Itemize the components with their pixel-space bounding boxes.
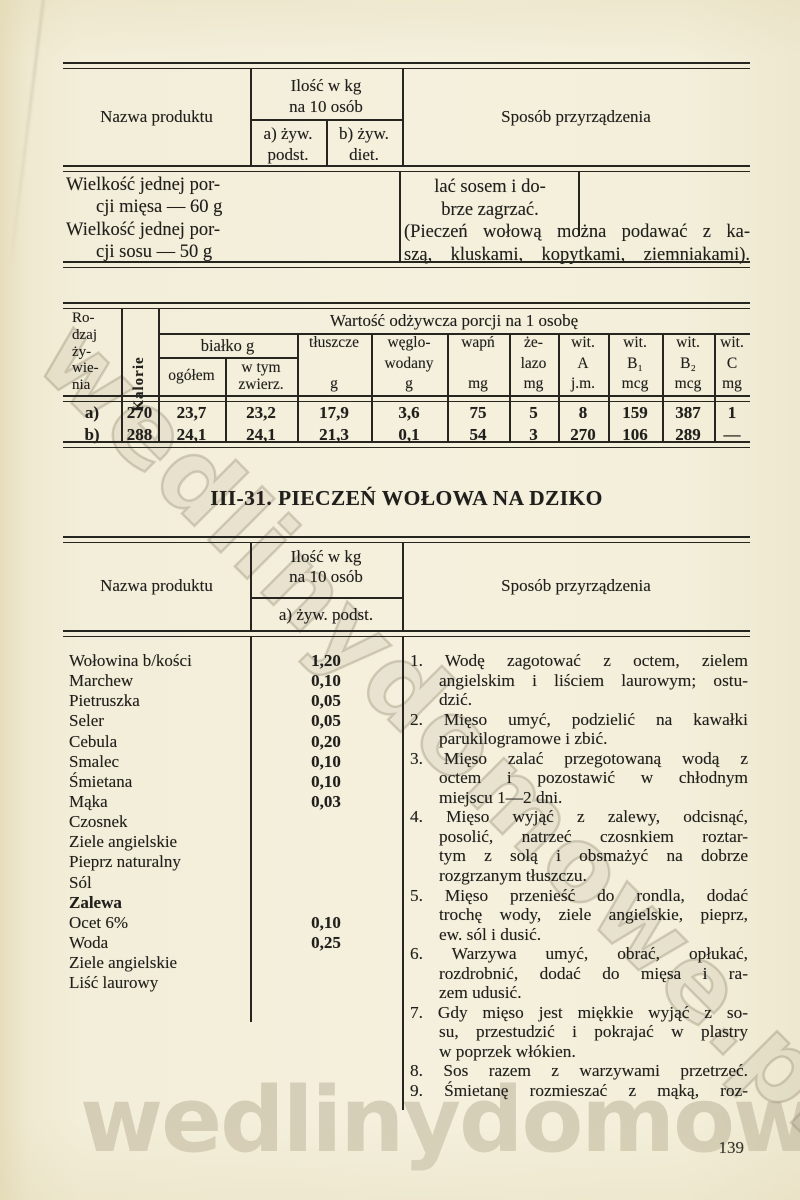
column-header-product: Nazwa produktu bbox=[63, 69, 250, 165]
step-line: 3. Mięso zalać przegotowaną wodą z bbox=[402, 749, 750, 769]
step-line: 8. Sos razem z warzywami przetrzeć. bbox=[402, 1061, 750, 1081]
ingredient-row: Sól bbox=[63, 873, 402, 893]
ingredient-row: Ziele angielskie bbox=[63, 832, 402, 852]
column-header-qty-a: a) żyw. podst. bbox=[250, 602, 402, 628]
weglowodany-header: węglo- wodany g bbox=[371, 335, 447, 392]
wit-c-header: wit. C mg bbox=[714, 335, 750, 392]
step-line: rozdrobnić, dodać do mięsa i ra- bbox=[402, 964, 750, 984]
column-header-product: Nazwa produktu bbox=[63, 542, 250, 630]
step-line: 4. Mięso wyjąć z zalewy, odcisnąć, bbox=[402, 807, 750, 827]
step-line: tym z solą i obsmażyć na dobrze bbox=[402, 846, 750, 866]
column-header-qty: Ilość w kg na 10 osób bbox=[250, 546, 402, 588]
scanned-page: wedlinydomowe.pl wedlinydomowe.pl Nazwa … bbox=[0, 0, 800, 1200]
table-divider bbox=[399, 172, 401, 262]
portion-line: cji sosu — 50 g bbox=[66, 241, 396, 263]
ingredient-row: Czosnek bbox=[63, 812, 402, 832]
nutrition-span-title: Wartość odżywcza porcji na 1 osobę bbox=[158, 309, 750, 333]
step-line: dzić. bbox=[402, 690, 750, 710]
qty-b-line: b) żyw. bbox=[339, 123, 389, 144]
ogolem-header: ogółem bbox=[158, 359, 225, 393]
ingredient-row: Wołowina b/kości1,20 bbox=[63, 651, 402, 671]
method-note-line: (Pieczeń wołową można podawać z ka- bbox=[404, 221, 750, 244]
ingredient-row: Ziele angielskie bbox=[63, 953, 402, 973]
wapn-header: wapń mg bbox=[447, 335, 509, 392]
tluszcze-header: tłuszcze g bbox=[297, 335, 371, 392]
qty-a-line: a) żyw. bbox=[264, 123, 313, 144]
column-header-qty-b: b) żyw. diet. bbox=[326, 122, 402, 165]
table-rule bbox=[63, 630, 750, 637]
qty-a-line: podst. bbox=[267, 144, 308, 165]
step-line: 7. Gdy mięso jest miękkie wyjąć z so- bbox=[402, 1003, 750, 1023]
qty-header-line: na 10 osób bbox=[289, 96, 363, 117]
ingredient-row: Śmietana0,10 bbox=[63, 772, 402, 792]
zelazo-header: że- lazo mg bbox=[509, 335, 558, 392]
table-bottom-rule bbox=[63, 441, 750, 448]
table-rule bbox=[250, 597, 402, 599]
portion-line: Wielkość jednej por- bbox=[66, 174, 396, 196]
step-line: rozgrzanym tłuszczu. bbox=[402, 866, 750, 886]
wit-a-header: wit. A j.m. bbox=[558, 335, 608, 392]
wit-b1-header: wit. B₁ mcg bbox=[608, 335, 662, 392]
step-line: 6. Warzywa umyć, obrać, opłukać, bbox=[402, 944, 750, 964]
step-line: 9. Śmietanę rozmieszać z mąką, roz- bbox=[402, 1081, 750, 1101]
step-line: 1. Wodę zagotować z octem, zielem bbox=[402, 651, 750, 671]
step-line: miejscu 1—2 dni. bbox=[402, 788, 750, 808]
ingredient-row: Cebula0,20 bbox=[63, 732, 402, 752]
ingredient-row: Ocet 6%0,10 bbox=[63, 913, 402, 933]
table-rule bbox=[63, 395, 750, 402]
ingredient-row-zalewa: Zalewa bbox=[63, 893, 402, 913]
step-line: posolić, natrzeć czosnkiem roztar- bbox=[402, 827, 750, 847]
column-header-method: Sposób przyrządzenia bbox=[402, 69, 750, 165]
table-top-rule bbox=[63, 302, 750, 309]
table-top-rule bbox=[63, 62, 750, 69]
column-header-qty: Ilość w kg na 10 osób bbox=[250, 74, 402, 118]
step-line: parukilogramowe i zbić. bbox=[402, 729, 750, 749]
ingredient-row: Mąka0,03 bbox=[63, 792, 402, 812]
step-line: zem udusić. bbox=[402, 983, 750, 1003]
preparation-steps: 1. Wodę zagotować z octem, zielem angiel… bbox=[402, 651, 750, 1101]
step-line: 2. Mięso umyć, podzielić na kawałki bbox=[402, 710, 750, 730]
ingredient-row: Liść laurowy bbox=[63, 973, 402, 993]
portion-line: cji mięsa — 60 g bbox=[66, 196, 396, 218]
column-header-qty-a: a) żyw. podst. bbox=[250, 122, 326, 165]
step-line: su, przestudzić i pokrajać w plastry bbox=[402, 1022, 750, 1042]
wit-b2-header: wit. B₂ mcg bbox=[662, 335, 714, 392]
row-label: a) bbox=[63, 402, 121, 424]
ingredient-row: Seler0,05 bbox=[63, 711, 402, 731]
step-line: angielskim i liściem laurowym; ostu- bbox=[402, 671, 750, 691]
ingredient-row: Smalec0,10 bbox=[63, 752, 402, 772]
method-line: brze zagrzać. bbox=[402, 199, 578, 222]
page-number: 139 bbox=[688, 1138, 744, 1158]
portion-note: Wielkość jednej por- cji mięsa — 60 g Wi… bbox=[66, 174, 396, 263]
step-line: w poprzek włókien. bbox=[402, 1042, 750, 1062]
qty-b-line: diet. bbox=[349, 144, 379, 165]
ingredient-row: Pietruszka0,05 bbox=[63, 691, 402, 711]
ingredient-row: Pieprz naturalny bbox=[63, 852, 402, 872]
ingredient-row: Woda0,25 bbox=[63, 933, 402, 953]
column-header-method: Sposób przyrządzenia bbox=[402, 542, 750, 630]
ingredient-list: Wołowina b/kości1,20 Marchew0,10 Pietrus… bbox=[63, 651, 402, 993]
rodzaj-header: Ro- dzaj ży- wie- nia bbox=[63, 310, 121, 394]
step-line: trochę wody, ziele angielskie, pieprz, bbox=[402, 905, 750, 925]
method-ending: lać sosem i do- brze zagrzać. bbox=[402, 176, 578, 221]
bialko-header: białko g bbox=[158, 335, 297, 356]
paper-crease bbox=[10, 0, 46, 263]
nutrition-row: a) 270 23,7 23,2 17,9 3,6 75 5 8 159 387… bbox=[63, 402, 750, 424]
wtym-header: w tym zwierz. bbox=[225, 359, 297, 393]
step-line: octem i pozostawić w chłodnym bbox=[402, 768, 750, 788]
portion-line: Wielkość jednej por- bbox=[66, 219, 396, 241]
qty-header-line: Ilość w kg bbox=[291, 75, 362, 96]
table-rule bbox=[63, 165, 750, 172]
method-line: lać sosem i do- bbox=[402, 176, 578, 199]
recipe-title: III-31. PIECZEŃ WOŁOWA NA DZIKO bbox=[63, 486, 750, 511]
ingredient-row: Marchew0,10 bbox=[63, 671, 402, 691]
step-line: 5. Mięso przenieść do rondla, dodać bbox=[402, 886, 750, 906]
step-line: ew. sól i dusić. bbox=[402, 925, 750, 945]
table-bottom-rule bbox=[63, 261, 750, 268]
